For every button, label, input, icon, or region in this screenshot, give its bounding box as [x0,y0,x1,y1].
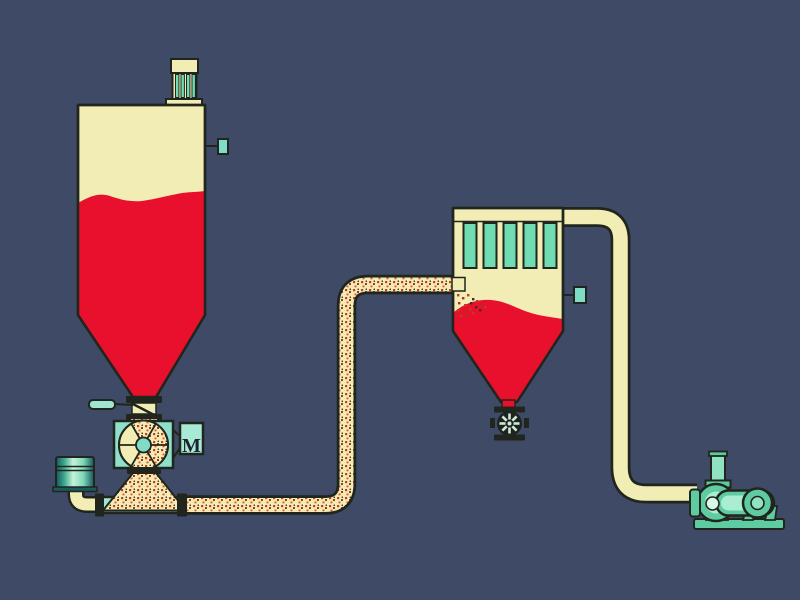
drum-body [56,457,94,488]
gate-handle [89,400,115,409]
intake-silencer-drum [53,457,97,492]
gate-handle-rod [115,404,133,405]
upper-flange [126,396,162,403]
feeder-hub [136,438,151,453]
motor-end-hub [751,497,764,510]
vent-cap [171,59,198,73]
rotary-feeder-valve [114,419,173,474]
level-sensor-icon [574,287,586,303]
pump-eye [706,497,719,510]
exhaust-stack [711,454,725,483]
stack-cap [709,452,727,457]
receiver-inlet-stub [452,278,465,292]
discharge-bottom-flange [494,435,525,441]
level-sensor-icon [218,139,228,154]
pump-inlet-collar [690,490,700,517]
diagram-canvas: M [0,0,800,600]
receiver-filter-bags [464,223,557,268]
motor-label: M [182,435,201,457]
drum-base [53,487,97,492]
process-diagram: M [0,0,800,600]
